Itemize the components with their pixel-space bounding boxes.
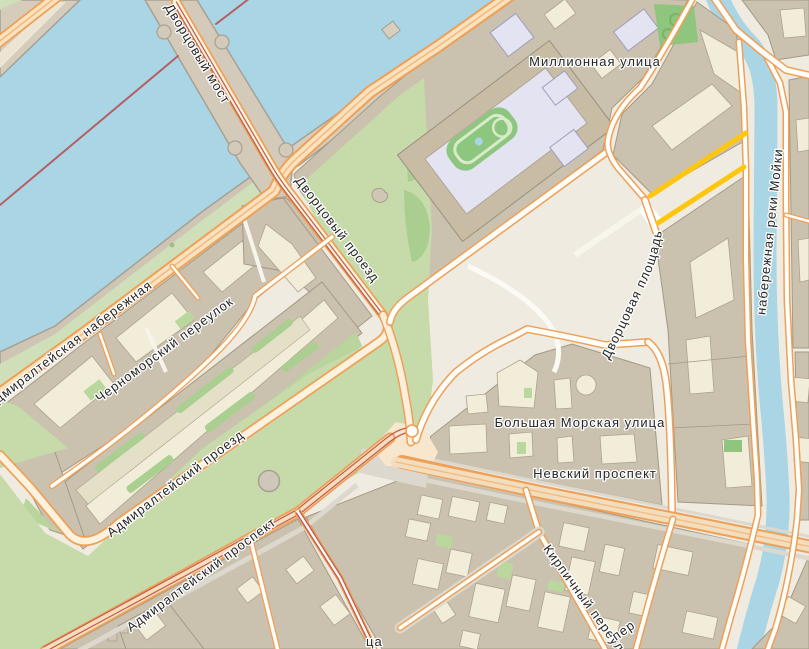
svg-text:Невский проспект: Невский проспект (533, 466, 657, 481)
svg-text:ца: ца (366, 634, 383, 649)
svg-text:Большая Морская улица: Большая Морская улица (495, 415, 666, 430)
svg-text:Миллионная улица: Миллионная улица (529, 54, 661, 69)
